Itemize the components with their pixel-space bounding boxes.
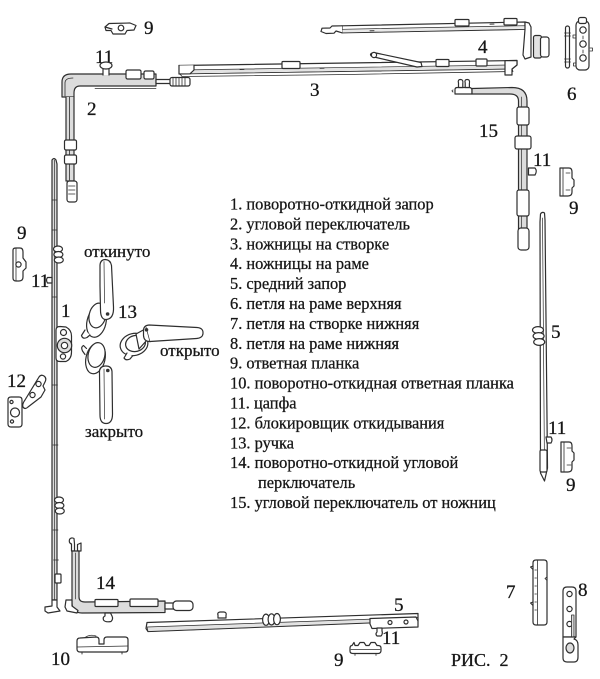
svg-text:2: 2	[87, 99, 97, 120]
svg-text:перключатель: перключатель	[258, 473, 355, 492]
svg-text:10: 10	[51, 649, 70, 670]
svg-text:9: 9	[334, 650, 344, 671]
svg-text:4: 4	[478, 37, 488, 58]
svg-text:14. поворотно-откидной угловой: 14. поворотно-откидной угловой	[230, 453, 458, 472]
svg-text:14: 14	[96, 573, 116, 594]
svg-text:1. поворотно-откидной запор: 1. поворотно-откидной запор	[230, 195, 434, 214]
svg-text:11: 11	[548, 418, 566, 439]
svg-text:8: 8	[578, 580, 588, 601]
svg-text:5. средний запор: 5. средний запор	[230, 274, 346, 293]
svg-text:закрыто: закрыто	[85, 422, 143, 441]
svg-text:13. ручка: 13. ручка	[230, 433, 295, 452]
svg-text:11: 11	[382, 628, 400, 649]
svg-text:10. поворотно-откидная ответна: 10. поворотно-откидная ответная планка	[230, 374, 515, 393]
svg-text:11: 11	[533, 150, 551, 171]
svg-text:12. блокировщик откидывания: 12. блокировщик откидывания	[230, 413, 445, 432]
svg-text:РИС. 2: РИС. 2	[451, 650, 509, 670]
svg-text:9: 9	[144, 18, 154, 39]
svg-text:12: 12	[7, 371, 26, 392]
svg-text:открыто: открыто	[160, 341, 220, 360]
svg-text:3. ножницы на створке: 3. ножницы на створке	[230, 234, 389, 253]
svg-text:13: 13	[118, 302, 137, 323]
svg-text:5: 5	[394, 595, 404, 616]
svg-text:6. петля на раме верхняя: 6. петля на раме верхняя	[230, 294, 402, 313]
svg-text:5: 5	[551, 322, 561, 343]
svg-text:8. петля на раме нижняя: 8. петля на раме нижняя	[230, 334, 400, 353]
svg-text:9. ответная планка: 9. ответная планка	[230, 354, 360, 373]
svg-text:15. угловой переключатель от н: 15. угловой переключатель от ножниц	[230, 493, 496, 512]
svg-text:откинуто: откинуто	[84, 242, 150, 261]
svg-text:7: 7	[506, 582, 516, 603]
svg-text:9: 9	[566, 475, 576, 496]
svg-text:1: 1	[61, 301, 71, 322]
svg-text:2. угловой переключатель: 2. угловой переключатель	[230, 214, 410, 233]
svg-text:15: 15	[479, 121, 498, 142]
svg-text:7. петля на створке нижняя: 7. петля на створке нижняя	[230, 314, 420, 333]
svg-text:9: 9	[17, 223, 27, 244]
svg-text:3: 3	[310, 80, 320, 101]
svg-text:11. цапфа: 11. цапфа	[230, 394, 297, 413]
svg-text:9: 9	[569, 198, 579, 219]
svg-text:11: 11	[31, 271, 49, 292]
svg-text:4. ножницы на раме: 4. ножницы на раме	[230, 254, 369, 273]
svg-text:6: 6	[567, 84, 577, 105]
